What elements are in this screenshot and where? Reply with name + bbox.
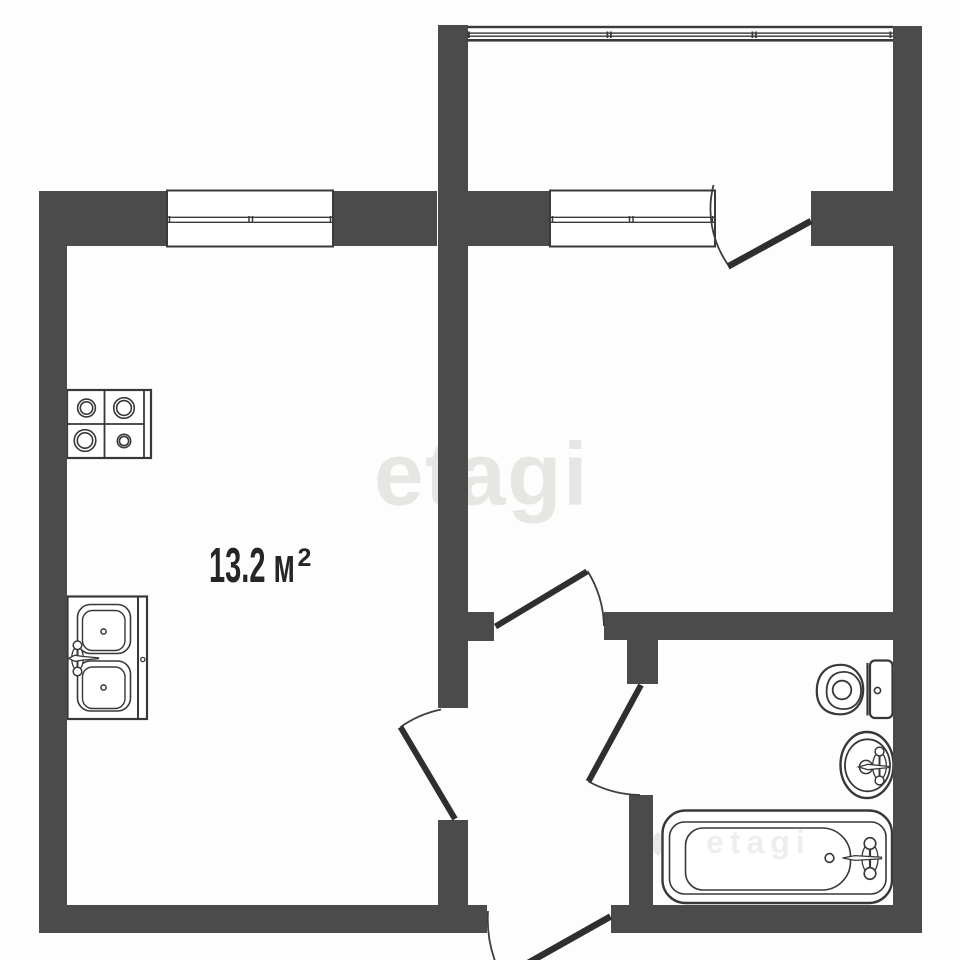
svg-text:etagi: etagi	[706, 824, 811, 860]
svg-text:etagi: etagi	[374, 424, 589, 524]
svg-text:13.2 м: 13.2 м	[209, 539, 295, 593]
svg-text:2: 2	[298, 544, 312, 572]
